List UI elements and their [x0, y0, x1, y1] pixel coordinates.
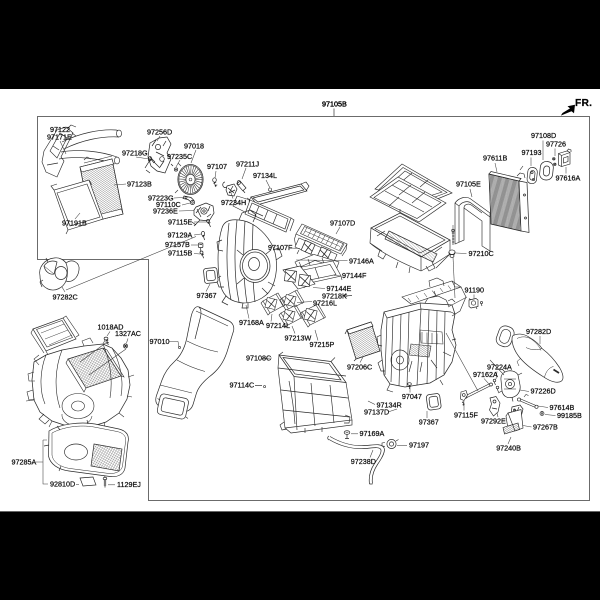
svg-text:97137D: 97137D [364, 407, 389, 416]
svg-text:99185B: 99185B [557, 411, 582, 420]
svg-text:91190: 91190 [465, 285, 484, 294]
svg-text:97169A: 97169A [360, 429, 385, 438]
svg-text:97105E: 97105E [456, 179, 481, 188]
svg-text:97168A: 97168A [239, 318, 264, 327]
svg-text:97282D: 97282D [526, 327, 551, 336]
svg-text:1129EJ: 1129EJ [117, 480, 141, 489]
svg-text:97129A: 97129A [168, 230, 193, 239]
svg-text:97282C: 97282C [53, 292, 78, 301]
svg-text:97210C: 97210C [469, 249, 494, 258]
svg-text:97616A: 97616A [556, 173, 581, 182]
svg-text:97216L: 97216L [313, 298, 337, 307]
svg-text:97367: 97367 [197, 291, 217, 300]
svg-text:92810D: 92810D [50, 479, 75, 488]
svg-text:97267B: 97267B [533, 422, 558, 431]
svg-text:97206C: 97206C [347, 363, 372, 372]
svg-text:97234H: 97234H [221, 198, 246, 207]
svg-text:97047: 97047 [402, 392, 422, 401]
svg-text:97213W: 97213W [285, 333, 312, 342]
svg-text:97256D: 97256D [147, 127, 172, 136]
svg-text:97238D: 97238D [351, 457, 376, 466]
svg-text:97162A: 97162A [473, 370, 498, 379]
svg-text:97218G: 97218G [122, 148, 148, 157]
svg-text:1327AC: 1327AC [115, 329, 141, 338]
svg-text:97114C: 97114C [230, 380, 255, 389]
svg-text:97292E: 97292E [481, 416, 506, 425]
svg-text:97215P: 97215P [310, 340, 335, 349]
svg-text:97236E: 97236E [153, 206, 178, 215]
svg-text:97285A: 97285A [12, 457, 37, 466]
svg-text:97115F: 97115F [454, 411, 478, 420]
svg-text:97367: 97367 [419, 418, 439, 427]
svg-text:97146A: 97146A [349, 256, 374, 265]
svg-text:97107D: 97107D [330, 218, 355, 227]
svg-text:97191B: 97191B [62, 218, 87, 227]
svg-text:97171E: 97171E [47, 132, 72, 141]
svg-text:97115B: 97115B [168, 248, 192, 257]
svg-text:97197: 97197 [409, 441, 429, 450]
svg-text:97134L: 97134L [253, 171, 277, 180]
svg-text:97611B: 97611B [483, 153, 507, 162]
svg-text:97144F: 97144F [342, 271, 367, 280]
svg-text:97226D: 97226D [531, 387, 556, 396]
svg-text:97240B: 97240B [496, 444, 521, 453]
svg-text:97010: 97010 [150, 337, 170, 346]
svg-text:97123B: 97123B [127, 179, 152, 188]
svg-text:97193: 97193 [522, 148, 542, 157]
svg-text:97105B: 97105B [322, 99, 347, 108]
svg-text:97107F: 97107F [268, 243, 293, 252]
svg-text:97018: 97018 [184, 141, 204, 150]
svg-text:97235C: 97235C [167, 152, 192, 161]
svg-text:97115E: 97115E [168, 217, 192, 226]
svg-text:97211J: 97211J [236, 159, 259, 168]
svg-text:FR.: FR. [575, 98, 592, 109]
svg-text:97107: 97107 [207, 162, 227, 171]
svg-text:97726: 97726 [546, 139, 566, 148]
svg-text:97108C: 97108C [246, 353, 271, 362]
svg-text:97214L: 97214L [266, 321, 290, 330]
